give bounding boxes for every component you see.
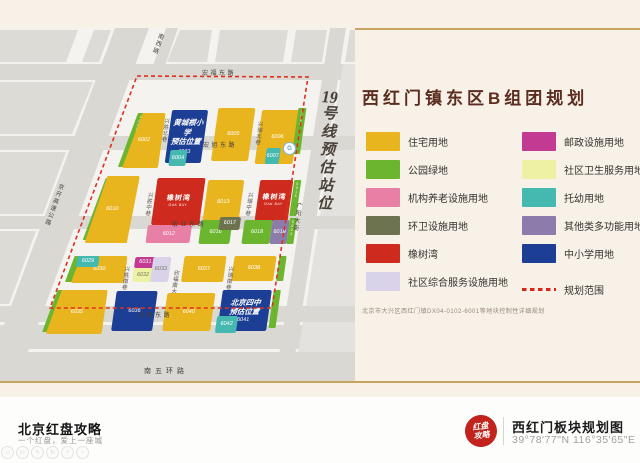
page-title: 西红门镇东区B组团规划 (362, 84, 632, 109)
parcel-6038: 6038 (231, 256, 277, 281)
legend-item-sanitation: 环卫设施用地 (366, 216, 468, 235)
parcel-oakbay-west: 橡树湾 OAK BAY (151, 178, 206, 225)
boundary-dash-swatch (522, 288, 556, 291)
legend-item-postal: 邮政设施用地 (522, 132, 624, 151)
legend-item-health: 社区卫生服务用地 (522, 160, 640, 179)
parcel-6005: 6005 (211, 108, 255, 161)
forward-icon[interactable]: ▷ (16, 446, 29, 459)
brand-seal: 红盘 攻略 (463, 413, 499, 449)
lane-label-xingrui-zhong: 兴瑞中巷 (243, 192, 252, 216)
swat​ch-oakbay (366, 244, 400, 263)
legend-item-school: 中小学用地 (522, 244, 614, 263)
swatch-sanitation (366, 216, 400, 235)
swatch-school (522, 244, 556, 263)
legend-item-community: 社区综合服务设施用地 (366, 272, 508, 291)
swatch-residential (366, 132, 400, 151)
legend-item-boundary: 规划范围 (522, 280, 604, 299)
parcel-oakbay-east: 橡树湾 OAK BAY (255, 180, 294, 221)
road-label-hongkang: 宏康东路 (138, 310, 172, 319)
refresh-icon[interactable]: ↻ (46, 446, 59, 459)
back-icon[interactable]: ◁ (1, 446, 14, 459)
parcel-6033: 6033 (150, 257, 172, 282)
lane-label-xingrui-nan: 兴瑞南巷 (224, 266, 233, 290)
legend-item-eldercare: 机构养老设施用地 (366, 188, 488, 207)
school-label: 北京四中 (230, 298, 261, 307)
minus-icon[interactable]: − (76, 446, 89, 459)
brand-tagline: 一个红盘，爱上一座城 (18, 435, 103, 446)
swatch-multiuse (522, 216, 556, 235)
legend-item-residential: 住宅用地 (366, 132, 448, 151)
parcel-6017: 6017 (218, 217, 241, 230)
legend-item-nursery: 托幼用地 (522, 188, 604, 207)
lane-label-xingsheng-zhong: 兴胜中巷 (143, 192, 152, 216)
parcel-6018: 6018 (241, 220, 272, 244)
viewer-toolbar: ◁ ▷ ✎ ↻ ⌕ − (1, 446, 89, 459)
parcel-6042: 6042 (215, 316, 238, 333)
greenstrip-row3-right (276, 256, 287, 281)
legend-item-oakbay: 橡树湾 (366, 244, 438, 263)
swatch-park (366, 160, 400, 179)
search-icon[interactable]: ⌕ (61, 446, 74, 459)
swatch-postal (522, 132, 556, 151)
road-label-hongye: 宏业东路 (172, 219, 206, 228)
swatch-health (522, 160, 556, 179)
parcel-6007: 6007 (265, 148, 281, 164)
gold-divider-bottom (0, 381, 640, 383)
swatch-nursery (522, 188, 556, 207)
road-label-wuhuan: 南五环路 (144, 366, 188, 376)
legend-item-park: 公园绿地 (366, 160, 448, 179)
coordinates: 39°78'77"N 116°35'65"E (512, 434, 636, 446)
road-label-hongfu: 宏福东路 (202, 68, 236, 77)
school-label: 黄城根小学 (168, 118, 207, 137)
plan-source-note: 北京市大兴区西红门镇DX04-0102-6001等地块控制性详细规划 (362, 306, 545, 315)
planning-poster: 宏福东路 宏旭东路 宏业东路 宏康东路 南五环路 京开高速公路 南西路 广阳大街… (0, 0, 640, 463)
parcel-6004: 6004 (168, 150, 187, 166)
footer: 北京红盘攻略 一个红盘，爱上一座城 ◁ ▷ ✎ ↻ ⌕ − 红盘 攻略 西红门板… (0, 397, 640, 463)
swatch-eldercare (366, 188, 400, 207)
road-label-hongxu: 宏旭东路 (203, 140, 237, 149)
parcel-6037: 6037 (181, 256, 227, 282)
swatch-community (366, 272, 400, 291)
footer-divider (503, 417, 504, 445)
metro-station-icon: G (283, 142, 296, 155)
legend-item-multiuse: 其他类多功能用地 (522, 216, 640, 235)
parcel-6029: 6029 (76, 256, 100, 267)
edit-icon[interactable]: ✎ (31, 446, 44, 459)
